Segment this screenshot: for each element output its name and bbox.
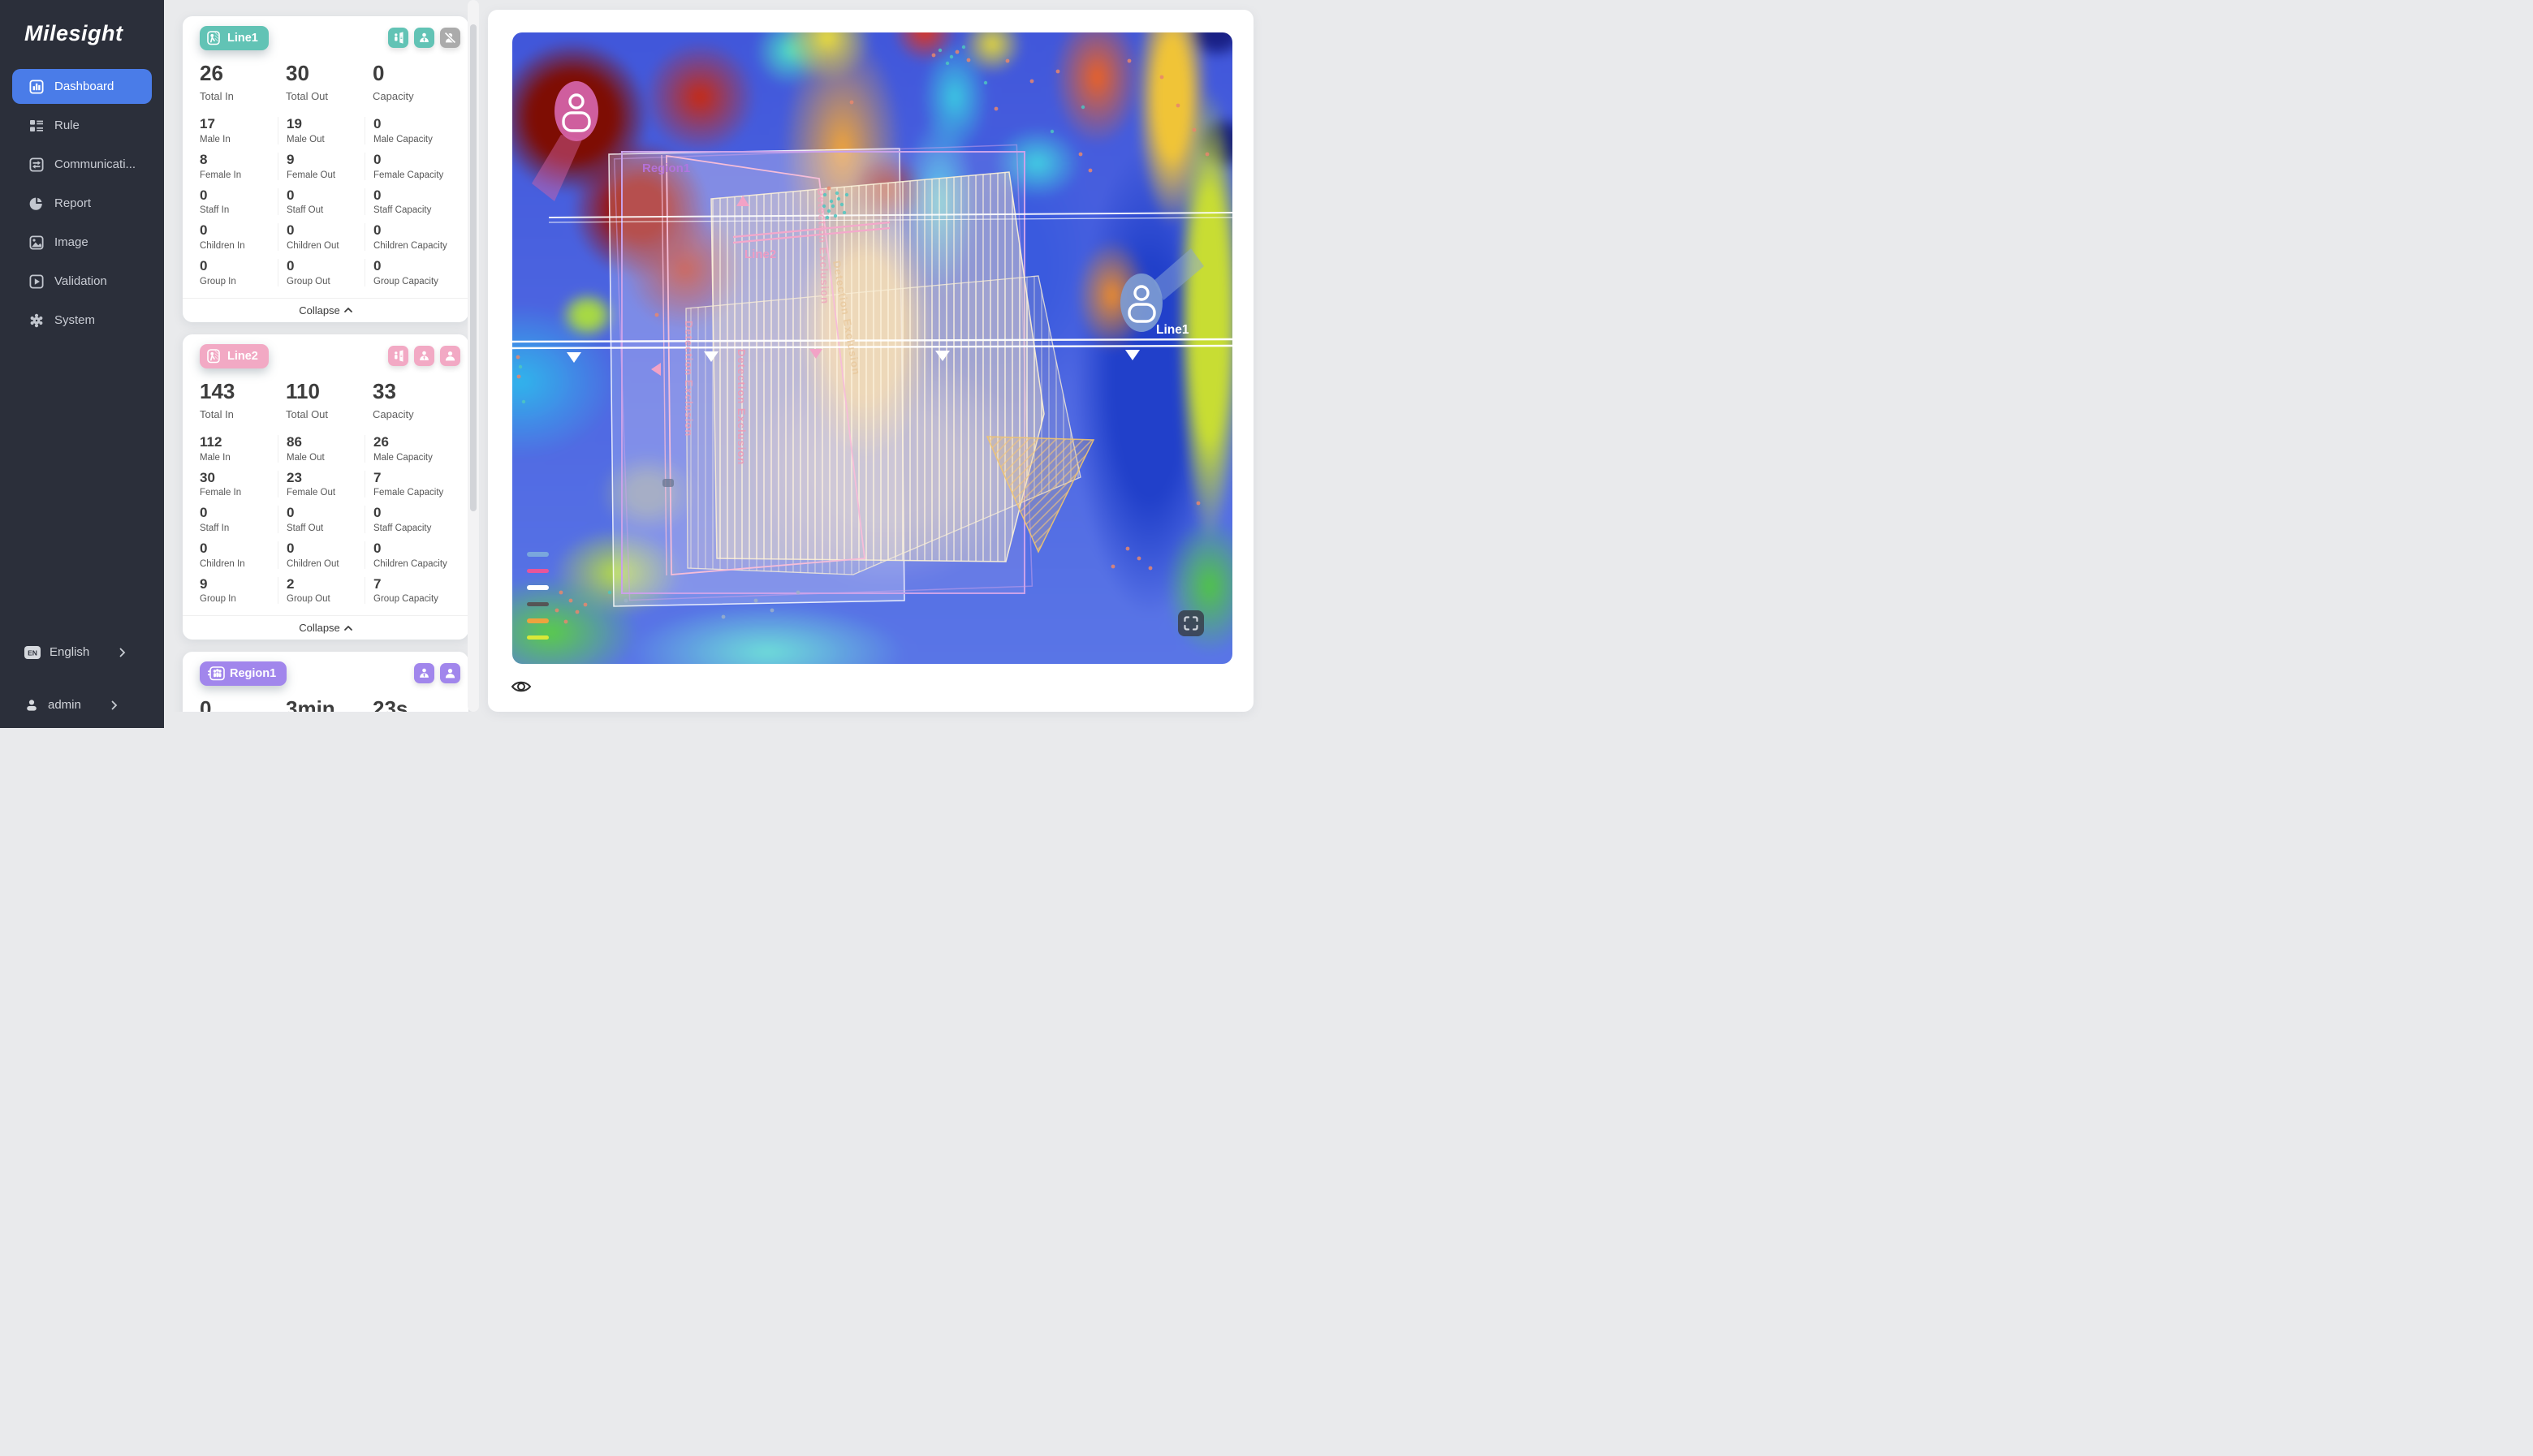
sidebar-item-label: Report bbox=[54, 196, 91, 210]
stat-value: 0 bbox=[200, 259, 278, 274]
summary-cell: 30 Total Out bbox=[286, 62, 373, 102]
summary-label: Capacity bbox=[373, 90, 468, 102]
children-detection-button[interactable] bbox=[440, 346, 460, 366]
legend-color-dash bbox=[527, 552, 549, 557]
stat-cell: 0 Children In bbox=[200, 541, 278, 569]
line2-card: Line2 143 Total In 110 Total Out bbox=[183, 334, 468, 640]
stat-label: Children Out bbox=[287, 559, 365, 569]
stat-cell: 0 Children In bbox=[200, 223, 278, 251]
staff-detection-button[interactable] bbox=[414, 663, 434, 683]
passing-count-button[interactable] bbox=[388, 28, 408, 48]
stat-label: Female In bbox=[200, 488, 278, 498]
svg-text:EN: EN bbox=[28, 648, 37, 657]
stat-label: Female In bbox=[200, 170, 278, 180]
stat-cell: 0 Children Capacity bbox=[365, 223, 468, 251]
validation-icon bbox=[29, 274, 44, 289]
sidebar-item-communication[interactable]: Communicati... bbox=[12, 147, 152, 182]
summary-value: 23s bbox=[373, 698, 468, 712]
sidebar-item-label: Communicati... bbox=[54, 157, 136, 171]
sidebar-item-label: Validation bbox=[54, 274, 107, 288]
stat-value: 26 bbox=[373, 435, 468, 450]
stat-label: Staff Capacity bbox=[373, 205, 468, 215]
legend-color-dash bbox=[527, 569, 549, 574]
stat-label: Children Out bbox=[287, 241, 365, 251]
stat-label: Staff In bbox=[200, 205, 278, 215]
stat-label: Male Out bbox=[287, 453, 365, 463]
stat-label: Group Out bbox=[287, 594, 365, 604]
stat-value: 19 bbox=[287, 117, 365, 132]
stat-label: Staff Out bbox=[287, 523, 365, 533]
sidebar-item-rule[interactable]: Rule bbox=[12, 108, 152, 143]
region1-map-label: Region1 bbox=[642, 162, 690, 175]
line2-badge-label: Line2 bbox=[227, 350, 258, 363]
summary-value: 0 bbox=[373, 62, 468, 84]
collapse-label: Collapse bbox=[299, 622, 340, 634]
stat-value: 7 bbox=[373, 577, 468, 592]
summary-cell: 0 bbox=[200, 698, 286, 712]
summary-value: 33 bbox=[373, 381, 468, 403]
stat-label: Female Out bbox=[287, 488, 365, 498]
children-icon bbox=[442, 666, 458, 681]
dashboard-icon bbox=[29, 80, 44, 94]
sidebar-item-image[interactable]: Image bbox=[12, 225, 152, 260]
stat-label: Group Capacity bbox=[373, 277, 468, 286]
line1-badge-label: Line1 bbox=[227, 32, 258, 45]
staff-icon bbox=[416, 30, 432, 45]
legend-color-dash bbox=[527, 635, 549, 640]
eye-icon bbox=[511, 679, 532, 694]
stat-label: Children In bbox=[200, 241, 278, 251]
stat-value: 0 bbox=[373, 153, 468, 168]
cards-scrollbar-thumb[interactable] bbox=[470, 24, 477, 511]
stat-cell: 0 Group Capacity bbox=[365, 259, 468, 286]
region-badge-icon bbox=[207, 666, 225, 681]
stat-value: 112 bbox=[200, 435, 278, 450]
people-counting-heatmap: Region1 Line2 Line1 Detection Exclusion … bbox=[512, 32, 1232, 664]
stat-cell: 9 Group In bbox=[200, 577, 278, 605]
line2-map-label: Line2 bbox=[744, 248, 776, 261]
person-marker-pink[interactable] bbox=[532, 81, 598, 201]
stat-label: Male Capacity bbox=[373, 135, 468, 144]
summary-value: 143 bbox=[200, 381, 286, 403]
region1-card: Region1 0 3min 54s 23s bbox=[183, 652, 468, 712]
line1-card: Line1 26 Total In 30 Total Out bbox=[183, 16, 468, 322]
stat-cell: 0 Staff In bbox=[200, 506, 278, 533]
stat-cell: 0 Children Out bbox=[278, 541, 365, 569]
summary-label: Total In bbox=[200, 408, 286, 420]
staff-detection-button[interactable] bbox=[414, 28, 434, 48]
detection-exclusion-label: Detection Exclusion bbox=[736, 349, 748, 465]
legend-color-dash bbox=[527, 618, 549, 623]
sidebar-item-label: Rule bbox=[54, 118, 80, 132]
stat-cell: 86 Male Out bbox=[278, 435, 365, 463]
legend-color-dash bbox=[527, 602, 549, 607]
stat-cell: 112 Male In bbox=[200, 435, 278, 463]
summary-cell: 23s bbox=[373, 698, 468, 712]
stat-cell: 0 Staff Capacity bbox=[365, 188, 468, 216]
stat-value: 0 bbox=[200, 506, 278, 521]
stat-label: Female Out bbox=[287, 170, 365, 180]
sidebar-item-system[interactable]: System bbox=[12, 303, 152, 338]
toggle-overlay-button[interactable] bbox=[509, 678, 533, 696]
stat-cell: 26 Male Capacity bbox=[365, 435, 468, 463]
sidebar-nav: Dashboard Rule Communicati... Report Ima… bbox=[0, 69, 164, 338]
map-legend bbox=[527, 552, 549, 640]
staff-detection-button[interactable] bbox=[414, 346, 434, 366]
stat-value: 2 bbox=[287, 577, 365, 592]
username-label: admin bbox=[48, 698, 81, 712]
cards-scrollbar-track bbox=[468, 0, 479, 712]
line2-badge[interactable]: Line2 bbox=[200, 344, 269, 368]
fullscreen-icon bbox=[1184, 616, 1198, 631]
stat-value: 0 bbox=[200, 188, 278, 204]
summary-value: 3min 54s bbox=[286, 698, 373, 712]
stat-cell: 0 Female Capacity bbox=[365, 153, 468, 180]
app-logo: Milesight bbox=[0, 0, 164, 46]
stat-value: 0 bbox=[373, 541, 468, 557]
stat-cell: 9 Female Out bbox=[278, 153, 365, 180]
summary-label: Total Out bbox=[286, 408, 373, 420]
stat-value: 0 bbox=[200, 541, 278, 557]
summary-cell: 110 Total Out bbox=[286, 381, 373, 420]
stat-label: Male Capacity bbox=[373, 453, 468, 463]
stat-value: 0 bbox=[373, 506, 468, 521]
stat-value: 0 bbox=[287, 223, 365, 239]
stat-value: 86 bbox=[287, 435, 365, 450]
stat-cell: 0 Group In bbox=[200, 259, 278, 286]
sidebar-item-label: System bbox=[54, 313, 95, 327]
summary-value: 0 bbox=[200, 698, 286, 712]
stat-label: Staff In bbox=[200, 523, 278, 533]
stat-value: 9 bbox=[200, 577, 278, 592]
rule-icon bbox=[29, 118, 44, 133]
stat-cell: 0 Staff Out bbox=[278, 506, 365, 533]
stat-label: Female Capacity bbox=[373, 170, 468, 180]
chevron-right-icon bbox=[119, 648, 126, 657]
stat-label: Group Capacity bbox=[373, 594, 468, 604]
line-badge-icon bbox=[207, 349, 222, 364]
stat-value: 0 bbox=[200, 223, 278, 239]
stat-value: 30 bbox=[200, 471, 278, 486]
summary-value: 110 bbox=[286, 381, 373, 403]
user-icon bbox=[24, 698, 39, 713]
stat-label: Children Capacity bbox=[373, 241, 468, 251]
stat-value: 0 bbox=[287, 188, 365, 204]
sidebar-item-label: Image bbox=[54, 235, 88, 249]
stat-cell: 0 Staff In bbox=[200, 188, 278, 216]
stat-value: 0 bbox=[373, 223, 468, 239]
stat-value: 0 bbox=[287, 259, 365, 274]
stat-cell: 7 Group Capacity bbox=[365, 577, 468, 605]
line2-stats: 112 Male In 86 Male Out 26 Male Capacity… bbox=[183, 435, 468, 615]
stat-label: Group In bbox=[200, 594, 278, 604]
line1-badge[interactable]: Line1 bbox=[200, 26, 269, 50]
language-label: English bbox=[50, 645, 89, 659]
user-menu[interactable]: admin bbox=[0, 687, 164, 722]
stat-cell: 19 Male Out bbox=[278, 117, 365, 144]
sidebar-item-validation[interactable]: Validation bbox=[12, 264, 152, 299]
stat-value: 23 bbox=[287, 471, 365, 486]
summary-cell: 26 Total In bbox=[200, 62, 286, 102]
summary-cell: 33 Capacity bbox=[373, 381, 468, 420]
stat-cell: 8 Female In bbox=[200, 153, 278, 180]
stat-cell: 7 Female Capacity bbox=[365, 471, 468, 498]
staff-icon bbox=[416, 348, 432, 364]
summary-label: Total Out bbox=[286, 90, 373, 102]
stat-label: Group In bbox=[200, 277, 278, 286]
stat-cell: 0 Group Out bbox=[278, 259, 365, 286]
stat-cell: 0 Children Out bbox=[278, 223, 365, 251]
stat-label: Staff Out bbox=[287, 205, 365, 215]
stat-value: 0 bbox=[373, 188, 468, 204]
sidebar-item-label: Dashboard bbox=[54, 80, 114, 93]
stat-label: Children Capacity bbox=[373, 559, 468, 569]
stat-cell: 0 Staff Out bbox=[278, 188, 365, 216]
stat-value: 0 bbox=[287, 506, 365, 521]
detection-exclusion-label: Detection Exclusion bbox=[683, 321, 695, 437]
map-area: Region1 Line2 Line1 Detection Exclusion … bbox=[480, 0, 1266, 728]
stat-label: Staff Capacity bbox=[373, 523, 468, 533]
stat-label: Female Capacity bbox=[373, 488, 468, 498]
door-passing-icon bbox=[391, 30, 406, 45]
report-icon bbox=[29, 196, 44, 211]
stat-label: Male In bbox=[200, 453, 278, 463]
stat-value: 7 bbox=[373, 471, 468, 486]
region1-badge-label: Region1 bbox=[230, 667, 276, 680]
stat-value: 0 bbox=[373, 259, 468, 274]
stats-column: Line1 26 Total In 30 Total Out bbox=[164, 0, 480, 712]
collapse-label: Collapse bbox=[299, 304, 340, 317]
children-detection-off-button[interactable] bbox=[440, 28, 460, 48]
line2-summary: 143 Total In 110 Total Out 33 Capacity bbox=[183, 381, 468, 420]
children-detection-button[interactable] bbox=[440, 663, 460, 683]
summary-value: 30 bbox=[286, 62, 373, 84]
collapse-button[interactable]: Collapse bbox=[183, 298, 468, 322]
summary-value: 26 bbox=[200, 62, 286, 84]
fullscreen-button[interactable] bbox=[1178, 610, 1204, 636]
stat-label: Male Out bbox=[287, 135, 365, 144]
line1-summary: 26 Total In 30 Total Out 0 Capacity bbox=[183, 62, 468, 102]
stat-label: Children In bbox=[200, 559, 278, 569]
line1-map-label: Line1 bbox=[1156, 323, 1189, 337]
stat-value: 0 bbox=[373, 117, 468, 132]
image-icon bbox=[29, 235, 44, 250]
summary-cell: 0 Capacity bbox=[373, 62, 468, 102]
stat-value: 8 bbox=[200, 153, 278, 168]
stat-label: Male In bbox=[200, 135, 278, 144]
passing-count-button[interactable] bbox=[388, 346, 408, 366]
stat-cell: 2 Group Out bbox=[278, 577, 365, 605]
chevron-up-icon bbox=[344, 308, 352, 312]
chevron-up-icon bbox=[344, 626, 352, 631]
communication-icon bbox=[29, 157, 44, 172]
stat-value: 17 bbox=[200, 117, 278, 132]
stat-cell: 23 Female Out bbox=[278, 471, 365, 498]
heatmap-panel: Region1 Line2 Line1 Detection Exclusion … bbox=[488, 10, 1254, 712]
gray-object-blob bbox=[662, 479, 674, 487]
line1-stats: 17 Male In 19 Male Out 0 Male Capacity 8… bbox=[183, 117, 468, 297]
language-selector[interactable]: EN English bbox=[0, 635, 164, 670]
stat-cell: 30 Female In bbox=[200, 471, 278, 498]
collapse-button[interactable]: Collapse bbox=[183, 615, 468, 640]
sidebar-item-report[interactable]: Report bbox=[12, 186, 152, 221]
stat-cell: 17 Male In bbox=[200, 117, 278, 144]
stat-value: 0 bbox=[287, 541, 365, 557]
line-badge-icon bbox=[207, 31, 222, 45]
stat-label: Group Out bbox=[287, 277, 365, 286]
gear-icon bbox=[29, 313, 44, 328]
staff-icon bbox=[416, 666, 432, 681]
door-passing-icon bbox=[391, 348, 406, 364]
sidebar-item-dashboard[interactable]: Dashboard bbox=[12, 69, 152, 104]
region1-badge[interactable]: Region1 bbox=[200, 661, 287, 686]
sidebar: Milesight Dashboard Rule Communicati... … bbox=[0, 0, 164, 728]
stat-cell: 0 Children Capacity bbox=[365, 541, 468, 569]
stat-cell: 0 Staff Capacity bbox=[365, 506, 468, 533]
stat-cell: 0 Male Capacity bbox=[365, 117, 468, 144]
summary-label: Capacity bbox=[373, 408, 468, 420]
children-slash-icon bbox=[442, 30, 458, 45]
stat-value: 9 bbox=[287, 153, 365, 168]
language-en-icon: EN bbox=[24, 646, 41, 659]
summary-cell: 143 Total In bbox=[200, 381, 286, 420]
summary-label: Total In bbox=[200, 90, 286, 102]
chevron-right-icon bbox=[111, 700, 118, 710]
legend-color-dash bbox=[527, 585, 549, 590]
person-marker-blue[interactable] bbox=[1120, 248, 1204, 332]
region1-summary: 0 3min 54s 23s bbox=[183, 698, 468, 712]
detection-overlay: Region1 Line2 Line1 Detection Exclusion … bbox=[512, 32, 1232, 664]
summary-cell: 3min 54s bbox=[286, 698, 373, 712]
children-icon bbox=[442, 348, 458, 364]
